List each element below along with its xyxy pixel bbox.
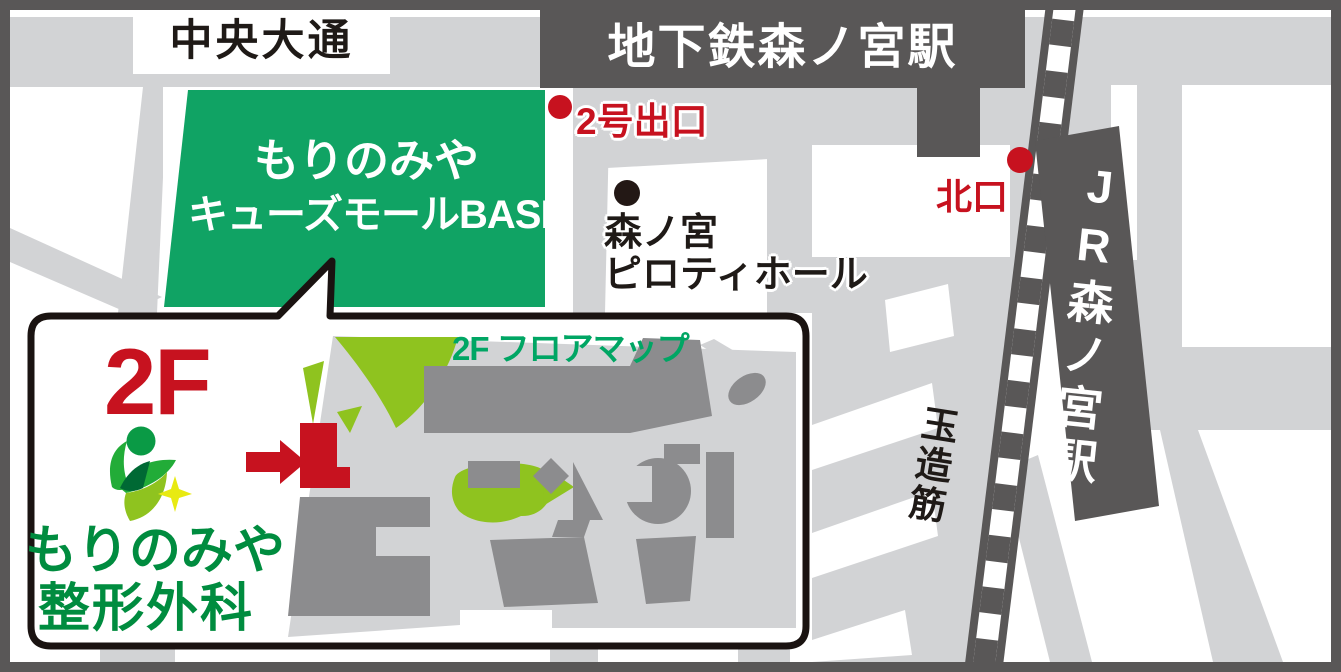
- mall-label: もりのみや キューズモールBASE: [188, 134, 545, 242]
- north-exit-dot: [1007, 147, 1033, 173]
- mall-label-line1: もりのみや: [188, 134, 545, 188]
- exit2-dot: [548, 95, 572, 119]
- piloti-hall-line2: ピロティホール: [604, 254, 868, 296]
- access-map: 中央大通 地下鉄森ノ宮駅 2号出口 北口 森ノ宮 ピロティホール もりのみや キ…: [0, 0, 1341, 672]
- subway-station-label: 地下鉄森ノ宮駅: [540, 10, 1025, 86]
- piloti-dot: [614, 180, 640, 206]
- north-exit-label: 北口: [936, 176, 1008, 217]
- mall-label-line2: キューズモールBASE: [188, 188, 545, 242]
- piloti-hall-label: 森ノ宮 ピロティホール: [604, 212, 868, 296]
- block-top-right: [1182, 85, 1331, 347]
- clinic-name-line1: もりのみや: [25, 522, 267, 580]
- road-label-chuo-odori: 中央大通: [133, 10, 390, 74]
- piloti-hall-line1: 森ノ宮: [604, 212, 868, 254]
- floor-map-title: 2F フロアマップ: [452, 330, 689, 368]
- clinic-name: もりのみや 整形外科: [25, 522, 267, 638]
- exit2-label: 2号出口: [576, 101, 708, 144]
- inset-floor-label: 2F: [104, 328, 210, 436]
- clinic-name-line2: 整形外科: [25, 580, 267, 638]
